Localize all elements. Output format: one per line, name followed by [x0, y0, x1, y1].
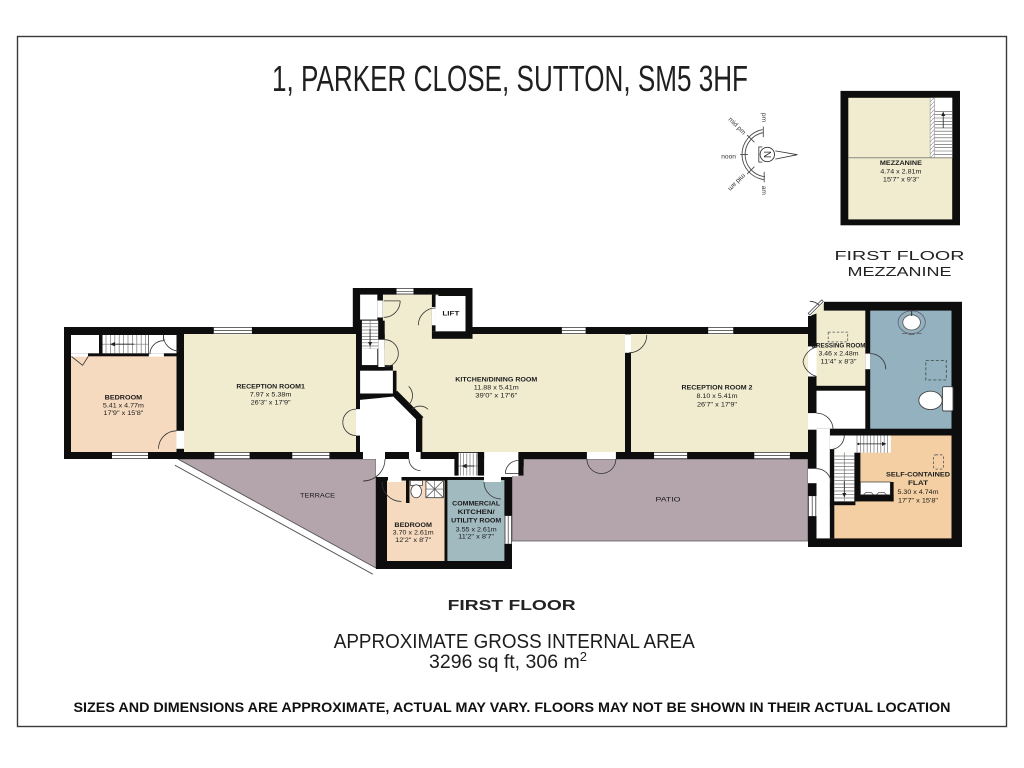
svg-text:BEDROOM: BEDROOM	[105, 395, 143, 402]
svg-text:RECEPTION ROOM1: RECEPTION ROOM1	[236, 384, 305, 391]
svg-text:4.74 x 2.81m: 4.74 x 2.81m	[880, 168, 921, 175]
svg-text:11'2" x 8'7": 11'2" x 8'7"	[458, 534, 494, 541]
svg-text:17'7" x 15'8": 17'7" x 15'8"	[898, 498, 938, 505]
svg-text:1, PARKER CLOSE, SUTTON, SM5 3: 1, PARKER CLOSE, SUTTON, SM5 3HF	[272, 58, 748, 99]
svg-text:3.55 x 2.61m: 3.55 x 2.61m	[456, 526, 497, 533]
svg-text:17'9" x 15'8": 17'9" x 15'8"	[103, 410, 143, 417]
svg-text:KITCHEN/DINING ROOM: KITCHEN/DINING ROOM	[455, 376, 537, 383]
svg-text:11'4" x 8'3": 11'4" x 8'3"	[821, 359, 857, 366]
svg-text:FIRST FLOOR: FIRST FLOOR	[448, 597, 576, 614]
svg-text:3.46 x 2.48m: 3.46 x 2.48m	[819, 351, 859, 358]
svg-text:MEZZANINE: MEZZANINE	[880, 160, 923, 167]
svg-text:15'7" x 9'3": 15'7" x 9'3"	[883, 177, 919, 184]
svg-text:pm: pm	[760, 113, 767, 123]
svg-text:5.41 x 4.77m: 5.41 x 4.77m	[103, 402, 144, 409]
svg-text:DRESSING ROOM: DRESSING ROOM	[812, 342, 866, 349]
svg-text:11.88 x 5.41m: 11.88 x 5.41m	[474, 385, 519, 392]
svg-text:39'0" x 17'6": 39'0" x 17'6"	[475, 393, 517, 400]
svg-text:3296 sq ft, 306 m2: 3296 sq ft, 306 m2	[429, 649, 587, 673]
svg-text:RECEPTION ROOM 2: RECEPTION ROOM 2	[682, 384, 753, 391]
svg-text:26'7" x 17'9": 26'7" x 17'9"	[697, 402, 737, 409]
svg-text:PATIO: PATIO	[656, 497, 681, 504]
svg-text:noon: noon	[721, 153, 736, 160]
svg-text:UTILITY ROOM: UTILITY ROOM	[451, 517, 501, 524]
svg-text:SELF-CONTAINED: SELF-CONTAINED	[886, 472, 950, 479]
svg-text:am: am	[760, 186, 767, 196]
svg-text:BEDROOM: BEDROOM	[394, 522, 432, 529]
svg-text:FIRST FLOOR: FIRST FLOOR	[835, 249, 965, 263]
svg-text:APPROXIMATE GROSS INTERNAL ARE: APPROXIMATE GROSS INTERNAL AREA	[334, 631, 696, 653]
svg-text:3.70 x 2.61m: 3.70 x 2.61m	[393, 530, 434, 537]
svg-text:5.30 x 4.74m: 5.30 x 4.74m	[898, 489, 939, 496]
svg-text:12'2" x 8'7": 12'2" x 8'7"	[395, 537, 431, 544]
svg-text:N: N	[761, 151, 772, 158]
svg-text:FLAT: FLAT	[908, 480, 928, 487]
svg-text:COMMERCIAL: COMMERCIAL	[452, 500, 500, 507]
svg-text:LIFT: LIFT	[442, 311, 459, 318]
svg-text:SIZES AND DIMENSIONS ARE APPRO: SIZES AND DIMENSIONS ARE APPROXIMATE, AC…	[74, 700, 951, 715]
svg-text:TERRACE: TERRACE	[300, 493, 335, 500]
svg-text:MEZZANINE: MEZZANINE	[848, 265, 952, 279]
svg-text:26'3" x 17'9": 26'3" x 17'9"	[251, 399, 291, 406]
svg-text:KITCHEN/: KITCHEN/	[458, 509, 495, 516]
svg-text:8.10 x 5.41m: 8.10 x 5.41m	[697, 393, 738, 400]
svg-text:7.97 x 5.38m: 7.97 x 5.38m	[250, 392, 292, 399]
